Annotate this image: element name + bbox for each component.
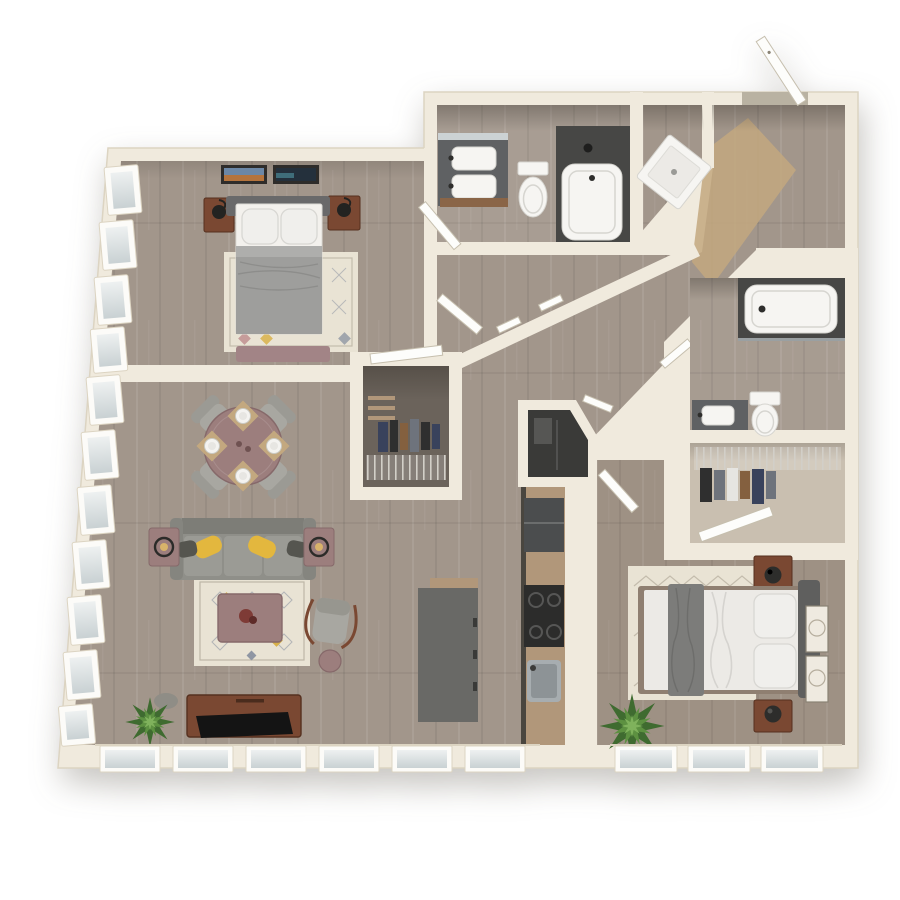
dining-area	[189, 393, 298, 501]
bedroom1-shade	[121, 161, 424, 179]
refrigerator	[524, 498, 564, 552]
bed-1	[226, 196, 330, 334]
bottom-window-group-right	[615, 746, 823, 772]
bed-2	[638, 580, 820, 698]
nightstand-right	[328, 196, 360, 230]
tub2-glass-edge	[738, 338, 845, 341]
laundry-shelf-line	[556, 420, 558, 470]
tub-2	[738, 278, 845, 341]
coffee-table	[218, 594, 282, 642]
toilet-2	[750, 392, 780, 436]
kitchen-island	[418, 578, 478, 722]
entry	[712, 36, 845, 131]
closet-wire-shelf	[366, 455, 446, 480]
apartment-plan	[58, 36, 858, 772]
sofa	[170, 518, 316, 580]
nightstand-top	[754, 556, 792, 588]
tub-faucet	[589, 175, 595, 181]
washer-hint	[534, 418, 552, 444]
bottom-wall-windows	[95, 744, 842, 772]
side-table-right	[304, 528, 334, 566]
nightstand-bottom	[754, 700, 792, 732]
cooktop	[524, 585, 564, 647]
vanity-2	[692, 400, 748, 430]
sink-2	[452, 175, 496, 198]
living-plant	[125, 697, 174, 746]
side-table-left	[149, 528, 179, 566]
walkin-wire-shelf	[694, 447, 841, 470]
double-vanity	[438, 133, 508, 207]
entry-shade	[712, 105, 845, 131]
tub-shower	[556, 126, 630, 242]
media-console	[187, 695, 301, 738]
faucet-1	[448, 155, 453, 160]
tv	[196, 712, 293, 738]
vanity-mirror	[438, 133, 508, 140]
toilet-1	[518, 162, 548, 217]
shower-room-shade	[643, 105, 704, 131]
floorplan-page: 3D top-view floor plan of a two-bedroom,…	[0, 0, 900, 900]
faucet-2	[448, 183, 453, 188]
ottoman	[319, 650, 341, 672]
hall-closet	[363, 366, 449, 487]
vanity-drawers	[440, 198, 508, 207]
kitchen-wall	[565, 480, 597, 745]
showerhead-icon	[584, 144, 593, 153]
bed-bench	[236, 346, 330, 362]
bathroom1-south-wall-b	[505, 242, 640, 255]
kitchen-sink	[527, 660, 561, 702]
bathroom-2	[690, 278, 845, 436]
hall-closet-shade	[363, 366, 449, 400]
sink-1	[452, 147, 496, 170]
walk-in-closet	[690, 443, 845, 543]
floorplan-render	[0, 0, 900, 900]
console-handle	[236, 699, 264, 703]
closet-wood-shelves	[368, 396, 395, 420]
